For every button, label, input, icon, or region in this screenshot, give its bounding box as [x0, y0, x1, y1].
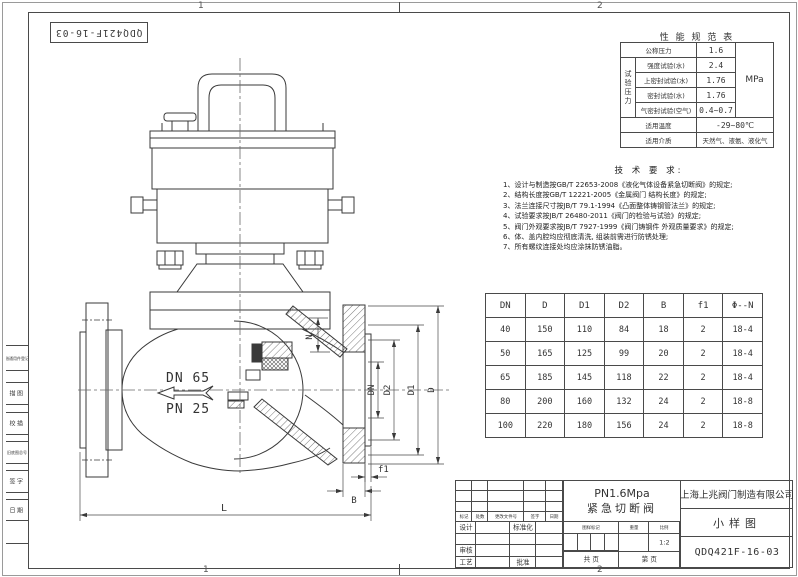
revision-cell — [472, 491, 488, 501]
table-cell: 80 — [486, 390, 526, 414]
table-header-cell: D1 — [565, 294, 605, 318]
table-header-row: DN D D1 D2 B f1 Φ--N — [486, 294, 763, 318]
signature-cell — [476, 545, 510, 557]
technical-requirements-title: 技 术 要 求: — [503, 164, 795, 176]
tech-req-item: 1、设计与制造按GB/T 22653-2008《液化气体设备紧急切断阀》的规定; — [503, 180, 795, 190]
dn-label: DN 65 — [166, 371, 210, 386]
table-cell: -29~80℃ — [697, 118, 774, 133]
table-cell: 18-8 — [723, 390, 763, 414]
table-cell: 密封试验(水) — [636, 88, 697, 103]
table-cell: 适用介质 — [621, 133, 697, 148]
table-cell: 50 — [486, 342, 526, 366]
dim-label-b: B — [351, 496, 356, 506]
table-cell: 上密封试验(水) — [636, 73, 697, 88]
weight-label: 重量 — [629, 524, 638, 530]
revision-cell — [488, 491, 524, 501]
signature-grid: 设计 标准化 审核 工艺 批准 — [456, 522, 563, 569]
weight-value-cell — [619, 534, 649, 552]
title-block-product-area: PN1.6Mpa 紧急切断阀 图样标记 重量 比例 1:2 — [563, 481, 680, 567]
revision-cell — [456, 481, 472, 491]
table-row: 适用温度 -29~80℃ — [621, 118, 774, 133]
table-cell: 65 — [486, 366, 526, 390]
role-cell-approve: 批准 — [510, 557, 536, 569]
table-cell: 165 — [525, 342, 565, 366]
table-header-cell: B — [644, 294, 684, 318]
revision-header-cell: 日期 — [546, 512, 563, 522]
table-row: 40 150 110 84 18 2 18-4 — [486, 318, 763, 342]
table-cell: 150 — [525, 318, 565, 342]
table-cell: 110 — [565, 318, 605, 342]
dim-label-d1: D1 — [407, 385, 417, 396]
table-cell: 84 — [604, 318, 644, 342]
signature-cell — [510, 545, 536, 557]
stamp-label-cell: 图样标记 — [564, 522, 619, 534]
table-cell: 145 — [565, 366, 605, 390]
revision-header-label: 标记 — [459, 513, 468, 519]
table-cell: 2 — [683, 390, 723, 414]
revision-cell — [472, 502, 488, 512]
revision-header-cell: 签字 — [524, 512, 546, 522]
revision-header-cell: 标记 — [456, 512, 472, 522]
table-cell: 2 — [683, 318, 723, 342]
signature-cell — [536, 522, 563, 534]
revision-cell — [524, 502, 546, 512]
table-cell: 220 — [525, 414, 565, 438]
tech-req-item: 5、阀门外观要求按JB/T 7927-1999《阀门铸钢件 外观质量要求》的规定… — [503, 222, 795, 232]
product-pressure-rating: PN1.6Mpa — [594, 487, 650, 500]
company-name: 上海上兆阀门制造有限公司 — [681, 481, 793, 509]
technical-requirements: 技 术 要 求: 1、设计与制造按GB/T 22653-2008《液化气体设备紧… — [503, 164, 795, 253]
revision-header-cell: 处数 — [472, 512, 488, 522]
role-label: 批准 — [516, 558, 529, 567]
table-row: 80 200 160 132 24 2 18-8 — [486, 390, 763, 414]
title-block-company-area: 上海上兆阀门制造有限公司 小样图 QDQ421F-16-03 — [680, 481, 793, 567]
table-cell: 18-4 — [723, 366, 763, 390]
table-cell: 125 — [565, 342, 605, 366]
role-label: 审核 — [459, 546, 472, 555]
table-cell: 试验压力 — [621, 58, 636, 118]
dim-label-dn: DN — [367, 385, 377, 396]
table-cell: 185 — [525, 366, 565, 390]
tech-req-item: 6、体、盖内腔均应彻底清洗, 组装前需进行防锈处理; — [503, 232, 795, 242]
table-row: 100 220 180 156 24 2 18-8 — [486, 414, 763, 438]
table-cell: 180 — [565, 414, 605, 438]
table-cell: 2 — [683, 414, 723, 438]
revision-header-label: 签字 — [530, 513, 539, 519]
table-cell: 132 — [604, 390, 644, 414]
revision-grid — [456, 481, 563, 512]
revision-cell — [488, 481, 524, 491]
signature-cell — [536, 545, 563, 557]
table-cell: 22 — [644, 366, 684, 390]
table-cell: 24 — [644, 414, 684, 438]
table-cell: 160 — [565, 390, 605, 414]
revision-cell — [472, 481, 488, 491]
role-label: 设计 — [459, 523, 472, 532]
table-cell: 0.4~0.7 — [697, 103, 736, 118]
table-cell: 公称压力 — [621, 43, 697, 58]
table-cell: 99 — [604, 342, 644, 366]
revision-header-label: 日期 — [550, 513, 559, 519]
weight-label-cell: 重量 — [619, 522, 649, 534]
product-name: PN1.6Mpa 紧急切断阀 — [564, 481, 680, 522]
drawing-sheet: 1 2 1 2 QDQ421F-16-03 借通用件登记 描图 校描 旧底图总号… — [0, 0, 798, 577]
scale-value: 1:2 — [659, 539, 670, 546]
table-cell: 156 — [604, 414, 644, 438]
table-cell: 1.76 — [697, 88, 736, 103]
table-cell: 200 — [525, 390, 565, 414]
signature-cell — [476, 557, 510, 569]
table-cell: 18-8 — [723, 414, 763, 438]
scale-value-cell: 1:2 — [649, 534, 680, 552]
drawing-labels: DN 65 PN 25 N DN D2 D1 D B f1 L — [166, 334, 437, 514]
title-block-revision-area: 标记 处数 更改文件号 签字 日期 设计 标准化 审核 工艺 批准 — [456, 481, 563, 567]
table-cell: 18-4 — [723, 318, 763, 342]
tech-req-item: 2、结构长度按GB/T 12221-2005《金属阀门 结构长度》的规定; — [503, 190, 795, 200]
tech-req-item: 3、法兰连接尺寸按JB/T 79.1-1994《凸面整体铸钢管法兰》的规定; — [503, 201, 795, 211]
stamp-subcells — [564, 534, 619, 552]
table-row: 65 185 145 118 22 2 18-4 — [486, 366, 763, 390]
revision-cell — [456, 502, 472, 512]
table-cell: 气密封试验(空气) — [636, 103, 697, 118]
product-type-name: 紧急切断阀 — [587, 500, 657, 516]
stamp-header-row: 图样标记 重量 比例 — [564, 522, 680, 534]
signature-cell — [456, 534, 476, 545]
table-header-cell: Φ--N — [723, 294, 763, 318]
dim-label-d: D — [427, 387, 437, 392]
performance-table: 公称压力 1.6 MPa 试验压力 强度试验(水) 2.4 上密封试验(水) 1… — [620, 42, 774, 148]
revision-cell — [456, 491, 472, 501]
tech-req-item: 7、所有螺纹连接处均应涂抹防锈油脂。 — [503, 242, 795, 252]
revision-header-cell: 更改文件号 — [488, 512, 524, 522]
signature-cell — [510, 534, 536, 545]
table-header-cell: D2 — [604, 294, 644, 318]
table-cell: 40 — [486, 318, 526, 342]
sheet-number-cell: 第 页 — [619, 552, 680, 568]
table-cell: 18 — [644, 318, 684, 342]
tech-req-item: 4、试验要求按JB/T 26480-2011《阀门的检验与试验》的规定; — [503, 211, 795, 221]
table-cell: 1.76 — [697, 73, 736, 88]
table-cell: 20 — [644, 342, 684, 366]
sheet-number-label: 第 页 — [641, 555, 656, 564]
dimension-table: DN D D1 D2 B f1 Φ--N 40 150 110 84 18 2 … — [485, 293, 763, 438]
stamp-value-row: 1:2 — [564, 534, 680, 552]
dim-label-d2: D2 — [383, 385, 393, 396]
role-cell-design: 设计 — [456, 522, 476, 534]
valve-actuator-assembly — [131, 74, 354, 329]
signature-cell — [536, 557, 563, 569]
signature-cell — [476, 534, 510, 545]
table-row: 适用介质 天然气、液氨、液化气 — [621, 133, 774, 148]
table-cell: 强度试验(水) — [636, 58, 697, 73]
sheet-total-cell: 共 页 — [564, 552, 619, 568]
table-row: 50 165 125 99 20 2 18-4 — [486, 342, 763, 366]
scale-label-cell: 比例 — [649, 522, 680, 534]
table-cell: 2 — [683, 366, 723, 390]
table-header-cell: DN — [486, 294, 526, 318]
stamp-subcell — [605, 534, 619, 551]
stamp-subcell — [578, 534, 592, 551]
table-cell: 18-4 — [723, 342, 763, 366]
document-type: 小样图 — [681, 509, 793, 538]
dim-label-f1: f1 — [378, 465, 389, 475]
stamp-subcell — [564, 534, 578, 551]
stamp-label: 图样标记 — [582, 524, 600, 530]
sheet-count-row: 共 页 第 页 — [564, 552, 680, 568]
table-cell: 24 — [644, 390, 684, 414]
table-cell: 1.6 — [697, 43, 736, 58]
revision-cell — [546, 502, 563, 512]
flow-direction-arrow — [158, 386, 213, 400]
dim-label-n: N — [305, 334, 315, 339]
signature-cell — [476, 522, 510, 534]
signature-cell — [536, 534, 563, 545]
table-cell: 2 — [683, 342, 723, 366]
role-label: 标准化 — [513, 523, 533, 532]
table-cell: 天然气、液氨、液化气 — [697, 133, 774, 148]
revision-cell — [524, 491, 546, 501]
revision-cell — [546, 491, 563, 501]
revision-cell — [524, 481, 546, 491]
pn-label: PN 25 — [166, 402, 210, 417]
role-label: 工艺 — [459, 558, 472, 567]
table-cell: 100 — [486, 414, 526, 438]
revision-header-row: 标记 处数 更改文件号 签字 日期 — [456, 512, 563, 522]
drawing-number: QDQ421F-16-03 — [681, 537, 793, 567]
table-cell: 适用温度 — [621, 118, 697, 133]
table-cell: 118 — [604, 366, 644, 390]
table-cell: MPa — [736, 43, 774, 118]
role-cell-standardize: 标准化 — [510, 522, 536, 534]
title-block: 标记 处数 更改文件号 签字 日期 设计 标准化 审核 工艺 批准 — [455, 480, 793, 568]
revision-header-label: 更改文件号 — [495, 513, 517, 519]
dim-label-l: L — [221, 503, 227, 514]
table-header-cell: D — [525, 294, 565, 318]
sheet-total-label: 共 页 — [583, 555, 598, 564]
role-cell-check: 审核 — [456, 545, 476, 557]
table-row: 公称压力 1.6 MPa — [621, 43, 774, 58]
revision-cell — [488, 502, 524, 512]
revision-cell — [546, 481, 563, 491]
role-cell-process: 工艺 — [456, 557, 476, 569]
stamp-subcell — [591, 534, 605, 551]
scale-label: 比例 — [660, 524, 669, 530]
table-cell: 2.4 — [697, 58, 736, 73]
table-header-cell: f1 — [683, 294, 723, 318]
revision-header-label: 处数 — [475, 513, 484, 519]
